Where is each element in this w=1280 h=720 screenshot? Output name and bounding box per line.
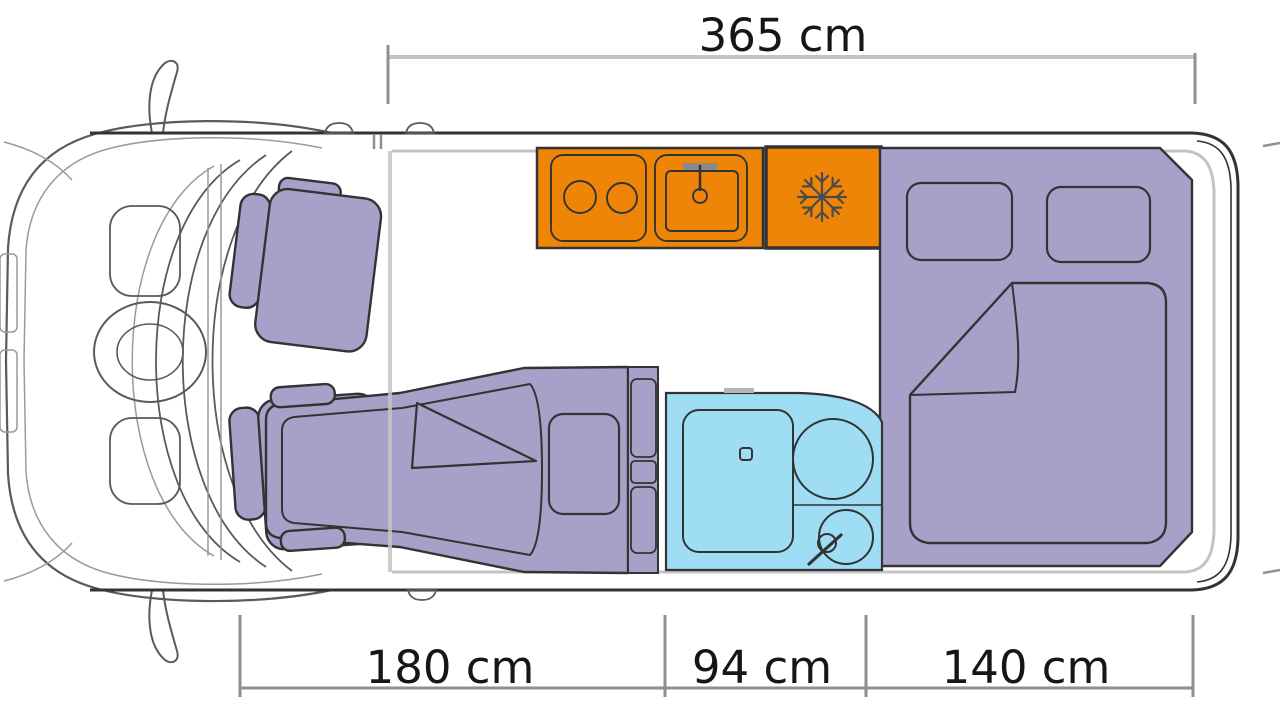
snowflake-icon bbox=[798, 173, 846, 221]
kitchen-block bbox=[537, 147, 881, 248]
bathroom-base bbox=[666, 393, 882, 570]
backrest-segment-2 bbox=[631, 461, 656, 483]
right-tick-top bbox=[1263, 143, 1280, 146]
cab-linework bbox=[0, 61, 332, 662]
passenger-seat bbox=[224, 173, 384, 354]
kitchen-counter bbox=[537, 148, 763, 248]
dimension-top: 365 cm bbox=[388, 9, 1195, 104]
passenger-seat-cushion bbox=[253, 187, 383, 354]
dimension-bottom: 180 cm 94 cm 140 cm bbox=[240, 615, 1193, 697]
right-tick-bottom bbox=[1263, 570, 1280, 573]
rear-bed-pillow-right bbox=[1047, 187, 1150, 262]
dimension-lounge-label: 180 cm bbox=[366, 641, 535, 694]
dimension-right-ticks bbox=[1263, 143, 1280, 573]
headlight-bottom bbox=[0, 350, 17, 432]
dimension-bathroom-label: 94 cm bbox=[692, 641, 832, 694]
dimension-top-label: 365 cm bbox=[699, 9, 868, 62]
steering-wheel-hub bbox=[117, 324, 183, 380]
dimension-rearbed-label: 140 cm bbox=[942, 641, 1111, 694]
backrest-segment-3 bbox=[631, 487, 656, 553]
bathroom bbox=[666, 388, 882, 570]
headrest-passenger bbox=[110, 206, 180, 296]
rear-bed bbox=[880, 148, 1192, 566]
front-bed-pillow bbox=[549, 414, 619, 514]
campervan-floorplan: 365 cm bbox=[0, 0, 1280, 720]
floorplan-page: 365 cm bbox=[0, 0, 1280, 720]
driver-seat-armrest-left bbox=[270, 383, 335, 407]
rear-bed-pillow-left bbox=[907, 183, 1012, 260]
bathroom-door-mark bbox=[724, 388, 754, 393]
backrest-segment-1 bbox=[631, 379, 656, 457]
steering-wheel-icon bbox=[94, 302, 206, 402]
driver-seat-armrest-right bbox=[280, 527, 345, 551]
